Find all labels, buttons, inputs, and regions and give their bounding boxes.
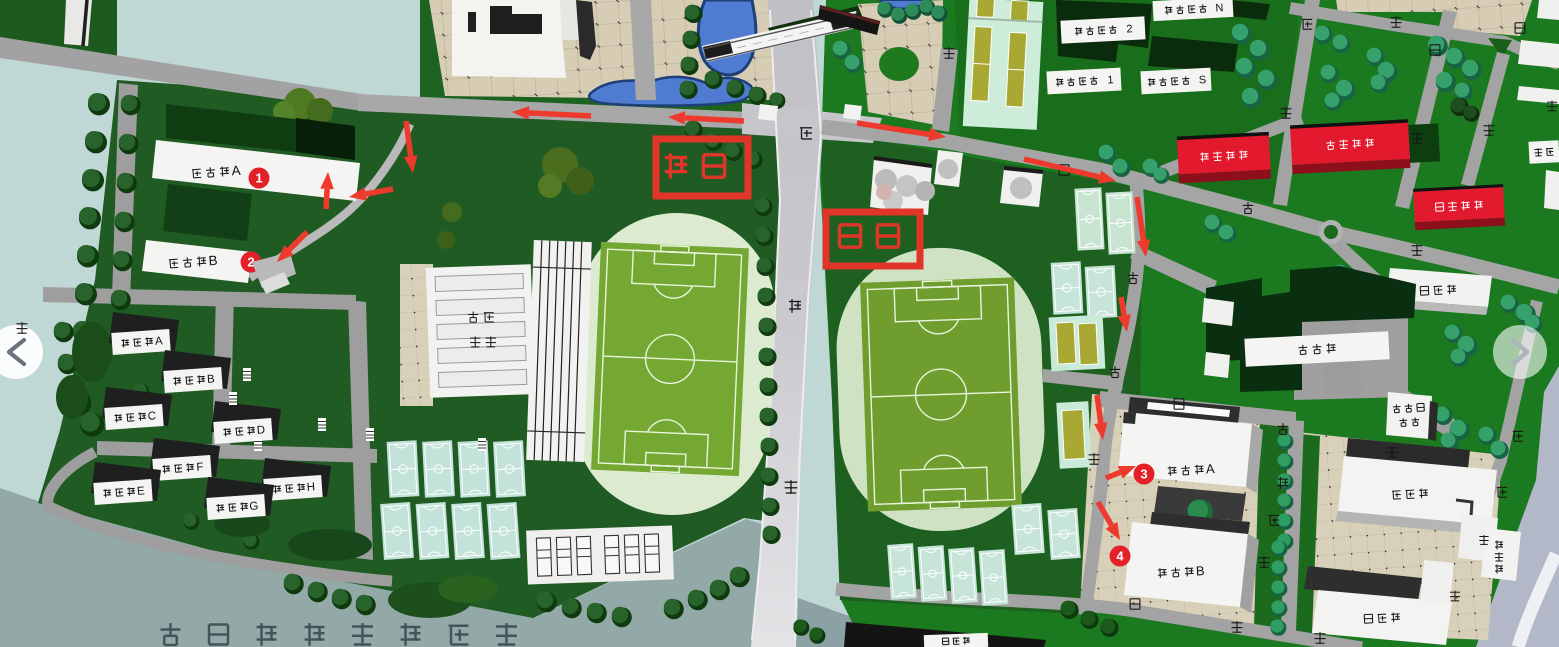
svg-text:E: E [137,485,146,498]
svg-text:3: 3 [1140,467,1147,482]
svg-text:H: H [306,481,315,494]
svg-text:A: A [231,163,241,179]
svg-text:2: 2 [1126,23,1133,35]
svg-text:1: 1 [1107,74,1114,86]
svg-text:B: B [208,253,218,269]
svg-text:C: C [147,410,156,423]
svg-text:F: F [196,461,204,473]
svg-text:B: B [207,373,216,386]
svg-text:A: A [155,335,164,348]
svg-text:4: 4 [1116,549,1124,564]
svg-text:S: S [1199,74,1207,86]
svg-text:G: G [249,500,259,513]
svg-text:1: 1 [255,171,262,186]
svg-text:D: D [256,424,265,437]
svg-text:A: A [1206,461,1216,476]
svg-text:N: N [1215,2,1224,14]
svg-text:B: B [1196,563,1205,578]
